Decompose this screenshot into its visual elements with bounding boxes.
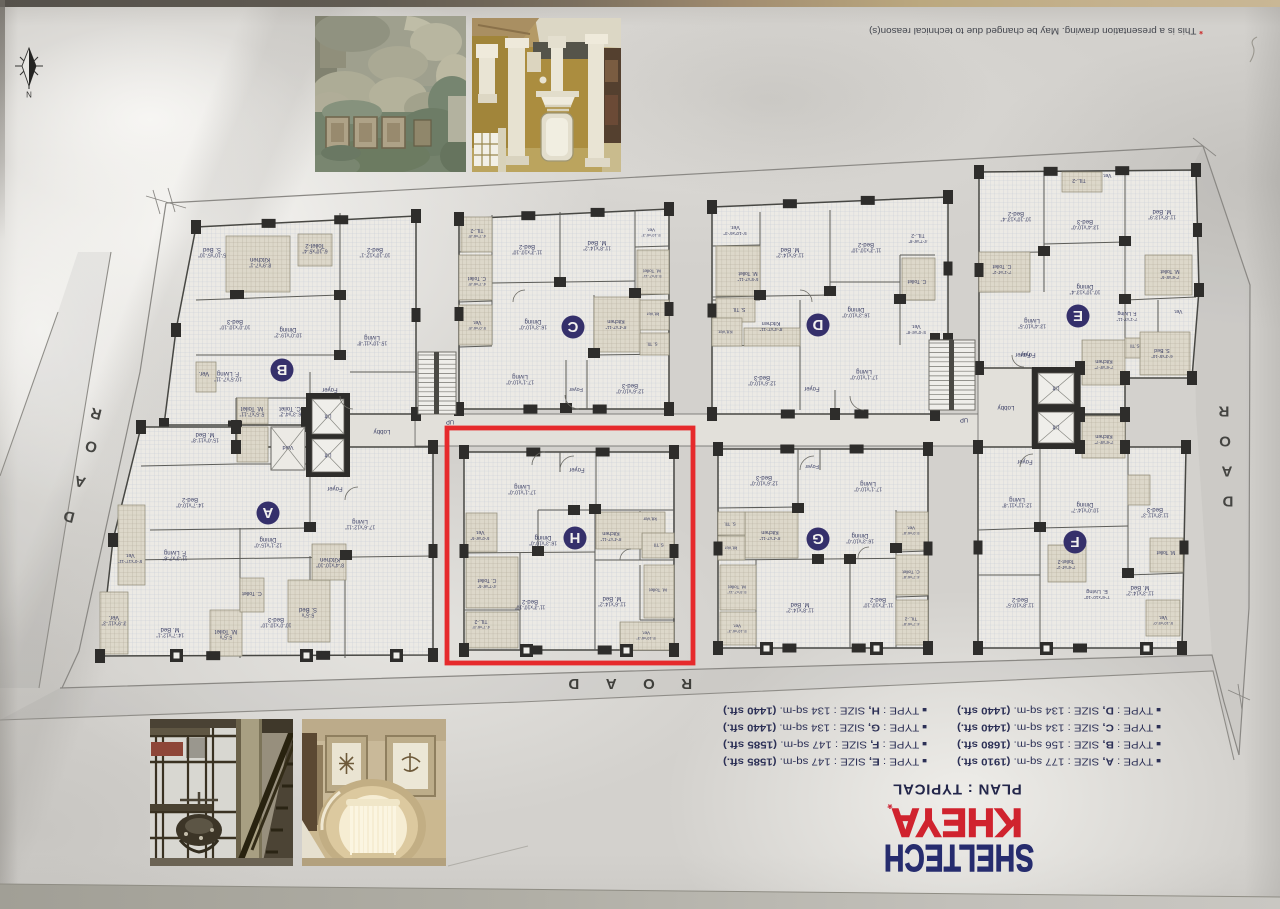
svg-text:5'-0"x6'-8": 5'-0"x6'-8" [467,326,486,331]
svg-text:Ver.: Ver. [730,224,740,230]
svg-text:Bed-2: Bed-2 [518,243,535,249]
svg-text:11'-6"x14'-2": 11'-6"x14'-2" [776,252,804,258]
svg-text:S.Tll: S.Tll [654,541,664,547]
svg-text:Bed-2: Bed-2 [1011,596,1028,602]
svg-text:11'-8"x10'-5": 11'-8"x10'-5" [1006,602,1034,608]
svg-text:M. Toilet: M. Toilet [215,628,238,634]
svg-text:M. Toilet: M. Toilet [648,586,666,592]
svg-text:10'-10"x13'-4": 10'-10"x13'-4" [1069,289,1100,295]
svg-text:■ TYPE : H, SIZE : 134 sq-m. (: ■ TYPE : H, SIZE : 134 sq-m. (1440 sft.) [723,705,927,716]
svg-text:Bed-3: Bed-3 [267,616,284,622]
svg-text:TIL.-2: TIL.-2 [474,618,487,624]
svg-text:4'-7"x6'-8": 4'-7"x6'-8" [902,575,920,579]
svg-text:7'-6"x4'-2": 7'-6"x4'-2" [1056,565,1075,570]
svg-text:Lift: Lift [1052,385,1059,391]
svg-text:15'-10"x11'-8": 15'-10"x11'-8" [357,340,388,346]
svg-text:S. Bed: S. Bed [203,246,221,252]
svg-text:6'-3"x4'-2": 6'-3"x4'-2" [279,411,302,417]
svg-text:10'-10"x12'-1": 10'-10"x12'-1" [359,252,390,258]
svg-text:UP: UP [960,416,968,422]
svg-text:M. Bed: M. Bed [1152,208,1171,214]
svg-text:Ver.: Ver. [125,552,134,558]
svg-text:11'-8"x14'-2": 11'-8"x14'-2" [786,607,814,613]
svg-text:O: O [83,436,99,455]
svg-text:C. Toilet: C. Toilet [992,263,1011,269]
svg-text:ROAD: ROAD [542,675,692,692]
svg-text:8'-4"x7'-11": 8'-4"x7'-11" [759,536,780,541]
svg-text:Foyer: Foyer [805,463,819,469]
svg-text:M. Bed: M. Bed [780,246,799,252]
svg-text:M. Bed: M. Bed [790,601,809,607]
svg-text:S. Tll.: S. Tll. [646,342,657,347]
svg-text:C. Toilet: C. Toilet [279,405,301,411]
svg-text:Foyer: Foyer [569,466,584,472]
svg-text:11'-3"x10'-10": 11'-3"x10'-10" [515,604,546,610]
svg-text:4'-7"x6'-8": 4'-7"x6'-8" [908,239,927,244]
svg-text:17'-1"x10'-0": 17'-1"x10'-0" [508,489,536,495]
svg-text:M. Toilet: M. Toilet [727,583,745,589]
svg-text:11'-8"x14'-2": 11'-8"x14'-2" [583,245,611,251]
svg-text:17'-6"x12'-11": 17'-6"x12'-11" [345,524,376,530]
svg-text:11'-3"x10'-10": 11'-3"x10'-10" [863,602,894,608]
svg-text:Toilet-2: Toilet-2 [1058,558,1075,564]
svg-text:11'-8"x11'-3": 11'-8"x11'-3" [1141,512,1168,518]
svg-text:Dining: Dining [1076,501,1093,507]
svg-text:Dining: Dining [279,326,296,332]
svg-text:5'-10"x6'-3": 5'-10"x6'-3" [727,629,747,633]
svg-text:TIL.-2: TIL.-2 [904,615,917,621]
svg-text:■ TYPE : E, SIZE : 147 sq-m. (: ■ TYPE : E, SIZE : 147 sq-m. (1585 sft.) [723,756,927,767]
svg-text:C. Toilet: C. Toilet [902,568,920,574]
svg-text:Bed-3: Bed-3 [1146,506,1163,512]
svg-text:Ver.: Ver. [108,614,119,620]
svg-text:Kitchen: Kitchen [250,256,270,262]
svg-text:S. Tll.: S. Tll. [724,521,736,526]
svg-text:Kitchen: Kitchen [761,529,778,535]
svg-text:Kitchen: Kitchen [1095,433,1112,439]
svg-text:O: O [1219,433,1231,450]
svg-text:5'-5"x: 5'-5"x [301,612,314,618]
svg-text:8'-4"x7'-11": 8'-4"x7'-11" [759,327,782,332]
svg-text:Lift: Lift [324,413,331,419]
svg-text:Lobby: Lobby [997,404,1015,411]
svg-text:A: A [1221,463,1232,480]
svg-text:12'-6"x10'-0": 12'-6"x10'-0" [616,388,644,394]
svg-text:Kitchen: Kitchen [602,530,619,536]
svg-text:3'-9"x11'-3": 3'-9"x11'-3" [101,620,126,626]
svg-text:Void: Void [283,444,294,450]
svg-text:Ver.: Ver. [476,529,485,535]
svg-text:Ver.: Ver. [907,524,915,530]
svg-text:Living: Living [512,373,528,379]
svg-text:■ TYPE : F, SIZE : 147 sq-m. (: ■ TYPE : F, SIZE : 147 sq-m. (1585 sft.) [723,739,927,750]
svg-text:M. Toilet: M. Toilet [1160,268,1180,274]
svg-text:F. Living: F. Living [217,370,239,376]
svg-text:16'-3"x10'-0": 16'-3"x10'-0" [519,324,547,330]
svg-text:C: C [567,318,578,335]
svg-text:Foyer: Foyer [569,386,583,392]
svg-text:S.Tll: S.Tll [1130,343,1139,348]
svg-text:Kitchen: Kitchen [607,318,624,324]
svg-text:E: E [1073,307,1083,324]
svg-text:Lobby: Lobby [373,428,391,435]
svg-text:Kit.Ver.: Kit.Ver. [717,328,732,334]
svg-text:15'-0"x11'-8": 15'-0"x11'-8" [191,437,219,443]
svg-text:H: H [570,529,581,546]
svg-text:5'-10"x6'-3": 5'-10"x6'-3" [641,233,661,237]
svg-text:Foyer: Foyer [804,385,819,391]
svg-text:M. Bed: M. Bed [160,626,179,632]
svg-text:Ver.: Ver. [1159,614,1168,620]
svg-text:D: D [812,316,823,333]
svg-text:13'-4"x10'-5": 13'-4"x10'-5" [1018,323,1046,329]
svg-text:5'-10"x5'-10": 5'-10"x5'-10" [198,252,226,258]
svg-text:4'-7"x6'-5": 4'-7"x6'-5" [477,584,496,589]
svg-text:4'-7"x6'-8": 4'-7"x6'-8" [467,282,486,287]
svg-text:Living: Living [1024,317,1040,323]
svg-text:A: A [73,472,88,491]
svg-text:M. Toilet: M. Toilet [642,267,660,273]
svg-text:F. Living: F. Living [164,549,186,555]
svg-text:10'-0"x10'-10": 10'-0"x10'-10" [260,622,291,628]
svg-text:Foyer: Foyer [322,386,337,392]
svg-text:M. Bed: M. Bed [195,431,214,437]
svg-text:M. Bed: M. Bed [587,239,606,245]
svg-text:Dining: Dining [851,532,868,538]
svg-text:7'-6"x5'-5": 7'-6"x5'-5" [1160,275,1179,280]
svg-text:Ver.: Ver. [1103,172,1112,178]
svg-text:S. Bed: S. Bed [1154,347,1170,353]
svg-text:5'-5"x7'-11": 5'-5"x7'-11" [642,274,662,278]
svg-text:■ TYPE : A, SIZE : 177 sq-m. (: ■ TYPE : A, SIZE : 177 sq-m. (1910 sft.) [957,756,1161,767]
svg-text:Ver.: Ver. [647,226,655,232]
svg-text:Dining: Dining [534,534,551,540]
svg-text:16'-3"x10'-0": 16'-3"x10'-0" [529,540,557,546]
svg-text:Bed-3: Bed-3 [753,374,770,380]
svg-text:4'-7"x6'-5": 4'-7"x6'-5" [471,625,490,630]
svg-text:10'-0"x14'-7": 10'-0"x14'-7" [1071,507,1099,513]
svg-text:Lift: Lift [1052,424,1059,430]
svg-text:5'-0"x6'-8": 5'-0"x6'-8" [902,531,920,535]
svg-text:8'-4"x10'-10": 8'-4"x10'-10" [316,562,344,568]
svg-text:F. Living: F. Living [1117,310,1136,316]
svg-text:5'-5"x7'-11": 5'-5"x7'-11" [239,411,264,417]
svg-text:M. Bed: M. Bed [1130,584,1149,590]
svg-text:Dining: Dining [847,306,864,312]
svg-text:Dining: Dining [259,536,276,542]
svg-text:7'-6"x9'-7": 7'-6"x9'-7" [1094,365,1113,370]
svg-text:F: F [1070,533,1079,550]
svg-text:5'-5"x7'-11": 5'-5"x7'-11" [727,590,747,594]
svg-text:Ver.: Ver. [1174,308,1183,314]
svg-text:Ver.: Ver. [198,370,209,376]
svg-text:11'-3"x14'-2": 11'-3"x14'-2" [1126,590,1154,596]
svg-text:7'-6"x9'-7": 7'-6"x9'-7" [1094,440,1113,445]
svg-text:7'-1"x4'-2": 7'-1"x4'-2" [992,270,1011,275]
svg-text:* This is a presentation drawi: * This is a presentation drawing. May be… [869,26,1203,36]
svg-text:14'-7"x10'-0": 14'-7"x10'-0" [176,502,204,508]
svg-text:11'-3"x10'-10": 11'-3"x10'-10" [512,249,543,255]
svg-text:Ver.: Ver. [473,319,482,325]
svg-text:Bed-3: Bed-3 [755,474,772,480]
svg-text:6'-10"x5'-4": 6'-10"x5'-4" [302,248,327,254]
svg-text:6'-3"x5'-10": 6'-3"x5'-10" [1151,354,1173,359]
svg-text:Foyer: Foyer [1015,351,1030,357]
svg-text:Bed-3: Bed-3 [226,318,243,324]
svg-text:kit.Ver: kit.Ver [643,515,657,521]
svg-text:D: D [1222,493,1233,510]
svg-text:G: G [812,530,824,547]
svg-text:10'-10"x13'-4": 10'-10"x13'-4" [1000,216,1031,222]
svg-text:Living: Living [352,518,368,524]
svg-text:5'-5"x7'-11": 5'-5"x7'-11" [737,277,758,282]
svg-text:Living: Living [514,483,530,489]
svg-text:Foyer: Foyer [327,485,342,491]
svg-text:5'-10"x6'-3": 5'-10"x6'-3" [723,231,747,236]
svg-text:14'-7"x12'-1": 14'-7"x12'-1" [156,632,184,638]
svg-text:11'-8"x13'-9": 11'-8"x13'-9" [1148,214,1176,220]
svg-text:8'-4"x7'-11": 8'-4"x7'-11" [605,325,626,330]
svg-text:C. Toilet: C. Toilet [467,275,486,281]
svg-text:Kitchen: Kitchen [1095,358,1112,364]
svg-text:12'-1"x15'-0": 12'-1"x15'-0" [254,542,282,548]
svg-text:11'-3"x7'-6": 11'-3"x7'-6" [162,555,187,561]
svg-text:5'-5"x: 5'-5"x [219,634,232,640]
svg-text:Dining: Dining [1076,283,1093,289]
svg-text:M. Bed: M. Bed [602,595,621,601]
svg-text:■ TYPE : B, SIZE : 156 sq-m. (: ■ TYPE : B, SIZE : 156 sq-m. (1680 sft.) [957,739,1161,750]
svg-text:A: A [262,504,273,521]
svg-text:R: R [1218,403,1229,420]
svg-text:12'-6"x10'-0": 12'-6"x10'-0" [750,480,778,486]
svg-text:5'-10"x5'-0": 5'-10"x5'-0" [1152,621,1173,626]
svg-text:17'-1"x10'-0": 17'-1"x10'-0" [850,374,878,380]
svg-text:kit.Ver: kit.Ver [724,546,737,551]
svg-text:R: R [89,404,104,423]
svg-text:Living: Living [856,368,872,374]
svg-text:10'-5"x7'-11": 10'-5"x7'-11" [214,376,242,382]
svg-text:■ TYPE : D, SIZE : 134 sq-m. (: ■ TYPE : D, SIZE : 134 sq-m. (1440 sft.) [957,705,1161,716]
svg-text:kit.Ver: kit.Ver [646,312,659,317]
svg-text:4'-7"x6'-8": 4'-7"x6'-8" [902,622,920,626]
svg-text:M. Toilet: M. Toilet [1156,549,1175,555]
svg-text:E. Living: E. Living [1086,588,1107,594]
svg-text:TIL.-2: TIL.-2 [911,232,925,238]
svg-text:Living: Living [364,334,380,340]
svg-text:5'-0"x6'-5": 5'-0"x6'-5" [470,536,489,541]
svg-text:■ TYPE : C, SIZE : 134 sq-m. (: ■ TYPE : C, SIZE : 134 sq-m. (1440 sft.) [957,722,1161,733]
svg-text:TIL.-2: TIL.-2 [1072,177,1086,183]
svg-text:Bed-3: Bed-3 [1076,218,1093,224]
svg-text:Living: Living [1009,496,1025,502]
svg-text:12'-11"x11'-8": 12'-11"x11'-8" [1002,502,1032,508]
svg-text:Bed-3: Bed-3 [621,382,638,388]
svg-text:N: N [26,90,32,99]
svg-text:7'-6"x10'-10": 7'-6"x10'-10" [1084,595,1110,600]
svg-text:TIL.-2: TIL.-2 [470,227,483,233]
svg-text:Bed-2: Bed-2 [181,496,198,502]
svg-text:Living: Living [860,480,876,486]
svg-text:Dining: Dining [524,318,541,324]
svg-text:■ TYPE : G, SIZE : 134 sq-m. (: ■ TYPE : G, SIZE : 134 sq-m. (1440 sft.) [723,722,927,733]
svg-text:8'-4"x7'-11": 8'-4"x7'-11" [600,537,621,542]
svg-text:Ver.: Ver. [911,323,920,329]
svg-text:Bed-2: Bed-2 [1007,210,1024,216]
svg-text:5'-0"x6'-8": 5'-0"x6'-8" [906,330,926,335]
svg-text:13'-4"x10'-0": 13'-4"x10'-0" [1071,224,1099,230]
svg-text:Bed-2: Bed-2 [521,598,538,604]
svg-text:Bed-2: Bed-2 [366,246,383,252]
svg-text:17'-1"x10'-0": 17'-1"x10'-0" [854,486,882,492]
svg-text:11'-3"x10'-10": 11'-3"x10'-10" [851,247,882,253]
svg-text:7'-1"x7'-11": 7'-1"x7'-11" [1116,317,1137,322]
svg-text:Bed-2: Bed-2 [857,241,874,247]
svg-text:Kitchen: Kitchen [320,556,340,562]
svg-text:PLAN : TYPICAL: PLAN : TYPICAL [892,781,1022,798]
svg-text:Kitchen: Kitchen [762,320,781,326]
svg-text:16'-3"x10'-0": 16'-3"x10'-0" [846,538,874,544]
svg-text:C. Toilet: C. Toilet [242,590,262,596]
svg-text:Foyer: Foyer [1017,458,1032,464]
svg-text:UP: UP [446,418,454,424]
svg-text:S. Bed: S. Bed [299,606,317,612]
svg-text:C. Toilet: C. Toilet [477,577,496,583]
svg-text:11'-6"x14'-2": 11'-6"x14'-2" [598,601,626,607]
svg-text:S. Tll.: S. Tll. [733,306,746,312]
svg-text:5'-0"x17'-11": 5'-0"x17'-11" [117,559,142,564]
svg-text:M. Toilet: M. Toilet [738,270,758,276]
svg-text:Ver.: Ver. [733,622,741,628]
svg-text:SHELTECH: SHELTECH [884,836,1034,878]
svg-text:17'-1"x10'-0": 17'-1"x10'-0" [506,379,534,385]
svg-text:B: B [276,361,287,378]
svg-text:10'-0"x19'-2": 10'-0"x19'-2" [274,332,302,338]
svg-text:C. Toilet: C. Toilet [907,278,926,284]
svg-text:Lift: Lift [324,452,331,458]
svg-text:12'-6"x10'-0": 12'-6"x10'-0" [748,380,776,386]
svg-text:4'-7"x6'-8": 4'-7"x6'-8" [467,234,486,239]
svg-text:10'-0"x10'-10": 10'-0"x10'-10" [219,324,250,330]
svg-text:5'-10"x6'-3": 5'-10"x6'-3" [636,636,656,640]
svg-text:Toilet-2: Toilet-2 [305,242,325,248]
svg-text:16'-3"x10'-0": 16'-3"x10'-0" [842,312,870,318]
svg-text:Ver.: Ver. [642,629,650,635]
svg-text:M. Toilet: M. Toilet [241,405,264,411]
svg-text:Bed-2: Bed-2 [869,596,886,602]
svg-text:8'-9"x7'-1": 8'-9"x7'-1" [249,262,272,268]
